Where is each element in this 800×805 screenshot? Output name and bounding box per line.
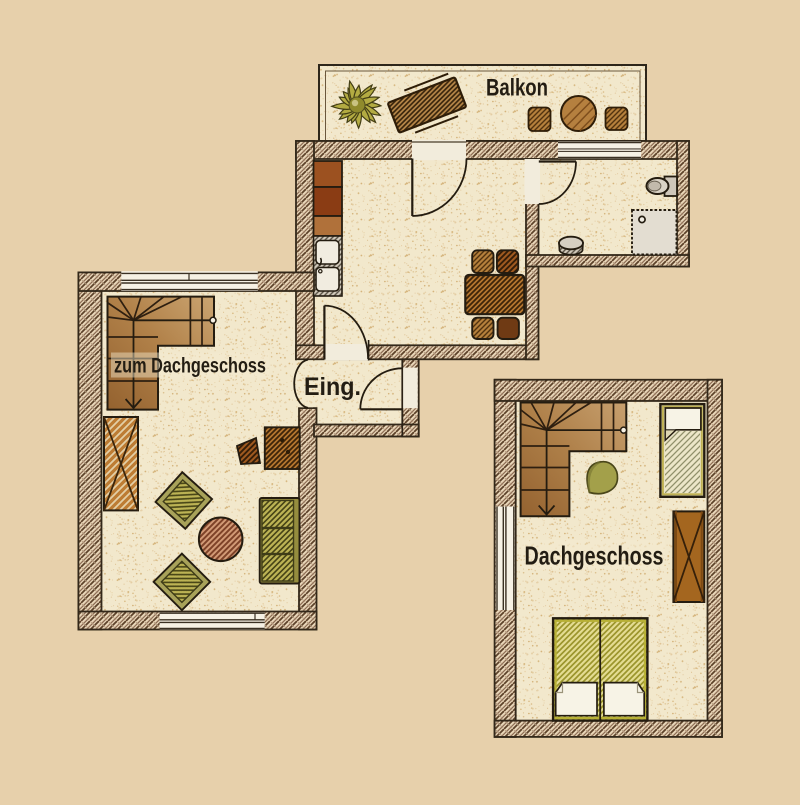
svg-text:Eing.: Eing.	[304, 373, 361, 401]
svg-text:Dachgeschoss: Dachgeschoss	[525, 541, 664, 571]
svg-text:zum Dachgeschoss: zum Dachgeschoss	[114, 355, 266, 378]
svg-text:Balkon: Balkon	[486, 75, 548, 102]
